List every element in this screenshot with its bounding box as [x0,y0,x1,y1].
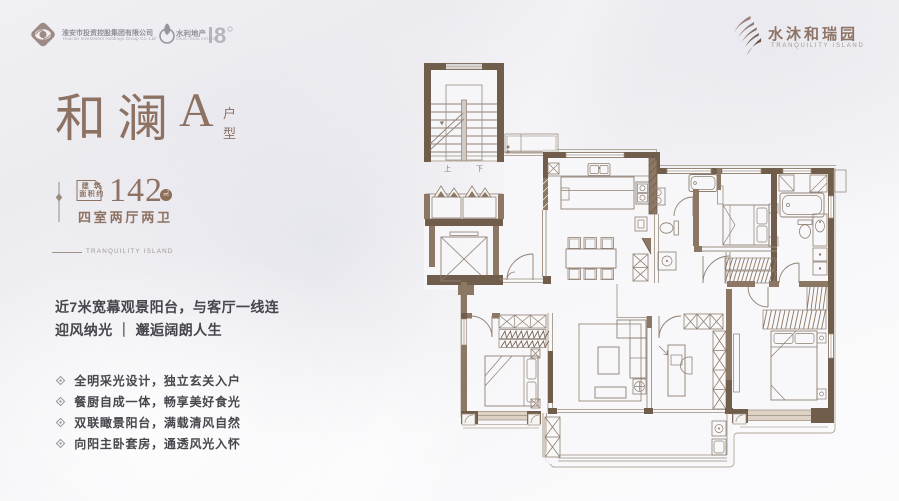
svg-text:下: 下 [476,165,483,173]
svg-text:上: 上 [444,164,451,173]
